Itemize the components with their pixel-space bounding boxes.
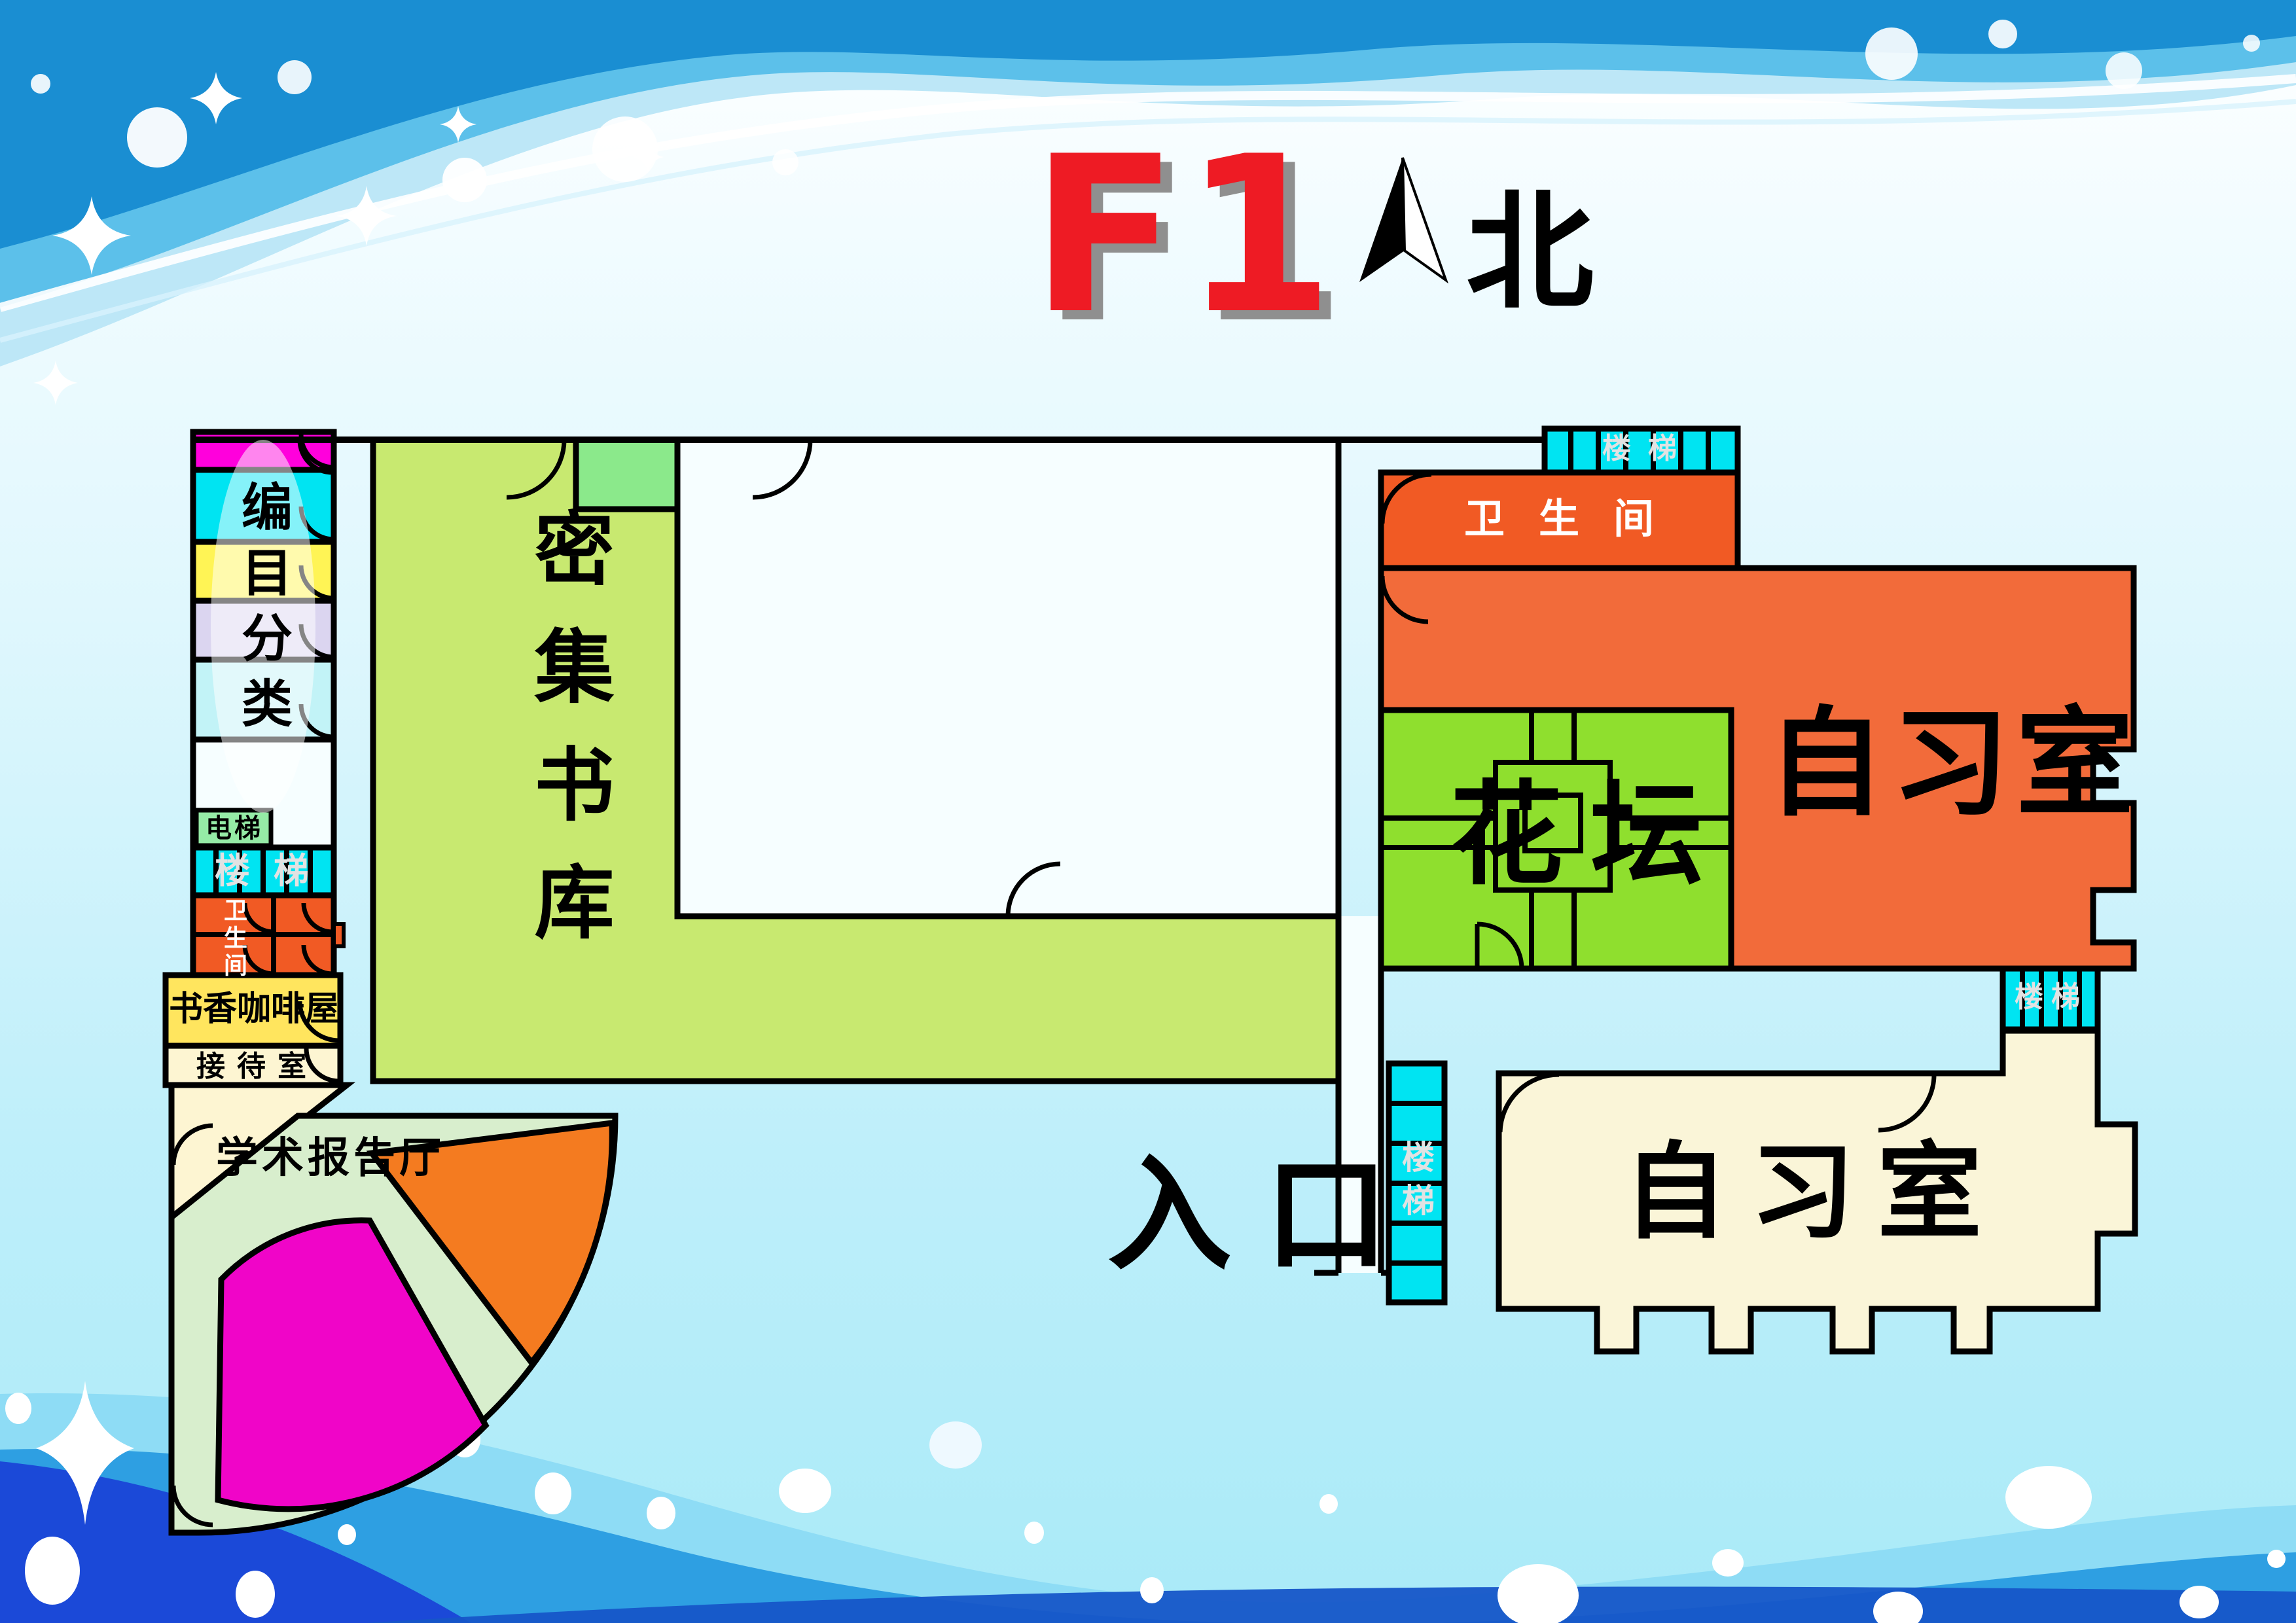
room-label-reception: 接待室 bbox=[196, 1052, 318, 1081]
room-label-stairs-top: 楼梯 bbox=[1602, 435, 1694, 463]
room-label-restroom-top: 卫生间 bbox=[1464, 499, 1688, 539]
room-label-catalog: 编目分类 bbox=[237, 480, 288, 742]
entrance-label: 入口 bbox=[1107, 1153, 1422, 1277]
room-stack-annex bbox=[576, 440, 677, 509]
room-label-stairs-left: 楼梯 bbox=[215, 853, 332, 889]
floor-plan bbox=[166, 429, 2135, 1533]
room-main-hall bbox=[677, 440, 1338, 916]
room-label-coffee-house: 书香咖啡屋 bbox=[169, 992, 339, 1026]
room-label-stairs-entrance: 楼梯 bbox=[1399, 1140, 1432, 1226]
room-label-flower-bed: 花坛 bbox=[1450, 779, 1731, 891]
north-arrow-icon bbox=[1359, 158, 1446, 282]
north-label: 北 bbox=[1466, 188, 1594, 316]
room-label-book-stack: 密集书库 bbox=[528, 507, 607, 978]
room-label-lecture-hall: 学术报告厅 bbox=[216, 1137, 445, 1179]
room-label-stairs-right: 楼梯 bbox=[2015, 983, 2088, 1012]
floor-title: F1 bbox=[1031, 128, 1339, 344]
room-label-restroom-left: 卫生间 bbox=[221, 898, 245, 980]
room-label-elevator: 电梯 bbox=[206, 815, 263, 842]
room-label-study-cream: 自习室 bbox=[1623, 1140, 2004, 1245]
room-label-study-orange: 自习室 bbox=[1767, 705, 2140, 823]
floor-plan-poster: F1 北 编目分类 密集书库 电梯 楼梯 卫生间 书香咖啡屋 接待室 学术报告厅… bbox=[0, 0, 2296, 1623]
